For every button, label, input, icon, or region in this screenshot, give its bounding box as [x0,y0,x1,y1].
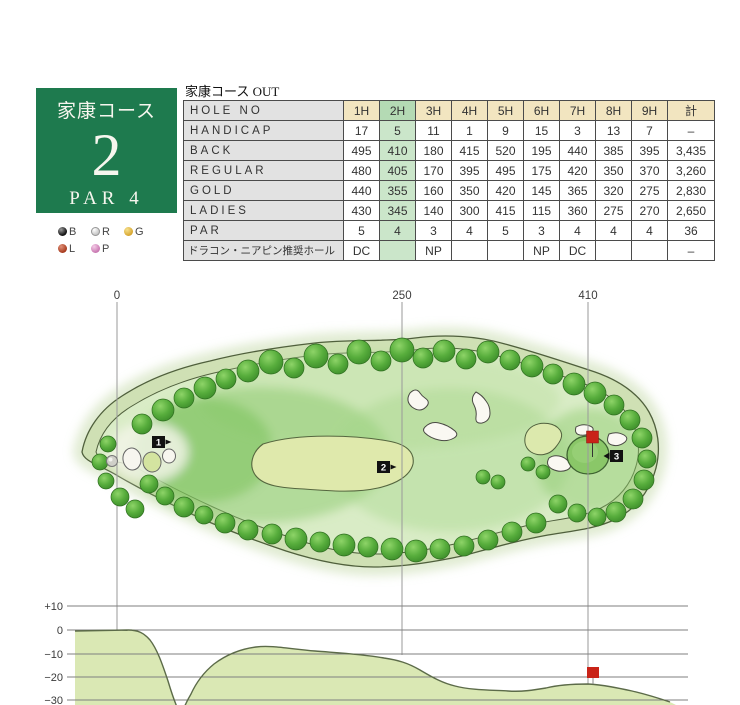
table-cell: 300 [452,201,488,221]
table-cell: 365 [560,181,596,201]
table-cell: 395 [452,161,488,181]
table-cell: – [668,121,715,141]
table-cell: 4 [560,221,596,241]
table-cell: 9 [488,121,524,141]
table-cell: 4H [452,101,488,121]
table-cell: 275 [632,181,668,201]
table-cell: 7H [560,101,596,121]
tee-legend-item: P [91,243,124,255]
terrain-fill-left [75,630,180,705]
table-row: HANDICAP 17 5 11 1 9 15 3 13 7 – [184,121,715,141]
table-row: REGULAR 480 405 170 395 495 175 420 350 … [184,161,715,181]
table-cell: 5 [488,221,524,241]
table-cell: 145 [524,181,560,201]
table-cell: 350 [452,181,488,201]
tee-legend-item: R [91,226,124,238]
table-cell: 3,260 [668,161,715,181]
table-row: LADIES 430 345 140 300 415 115 360 275 2… [184,201,715,221]
table-cell-highlighted: 410 [380,141,416,161]
table-cell: 440 [560,141,596,161]
table-cell: 11 [416,121,452,141]
table-cell: 3H [416,101,452,121]
table-cell: 270 [632,201,668,221]
tee-code: R [102,226,110,238]
tee-legend-row: B R G [58,223,188,240]
table-cell-highlighted [380,241,416,261]
table-cell: 計 [668,101,715,121]
tee-ball-red-icon [58,244,67,253]
table-cell [632,241,668,261]
table-cell: 430 [344,201,380,221]
putting-green-highlight [572,441,598,463]
row-label: PAR [184,221,344,241]
elevation-label-minus20: −20 [44,672,63,684]
table-cell: 1H [344,101,380,121]
row-label: HOLE NO [184,101,344,121]
elevation-chart: +10 0 −10 −20 −30 [44,601,688,705]
distance-label-410: 410 [578,290,597,302]
tee-code: L [69,243,75,255]
table-cell-highlighted: 5 [380,121,416,141]
table-cell: 4 [596,221,632,241]
course-guide-page: 家康コース 2 PAR 4 B R G L P 家康コース OUT HOLE [0,0,740,705]
table-cell: NP [524,241,560,261]
table-cell: 440 [344,181,380,201]
distance-label-250: 250 [392,290,411,302]
tee-marker-3-label: 3 [614,452,619,463]
table-cell: NP [416,241,452,261]
tee-code: P [102,243,109,255]
table-row: GOLD 440 355 160 350 420 145 365 320 275… [184,181,715,201]
course-name: 家康コース [36,96,177,123]
row-label: ドラコン・ニアピン推奨ホール [184,241,344,261]
table-cell: 395 [632,141,668,161]
hole-card: 家康コース 2 PAR 4 [36,88,177,213]
tee-legend-item: L [58,243,91,255]
tee-legend-row: L P [58,240,188,257]
table-cell: 420 [488,181,524,201]
table-cell: 6H [524,101,560,121]
table-cell: 370 [632,161,668,181]
table-row-header: HOLE NO 1H 2H 3H 4H 5H 6H 7H 8H 9H 計 [184,101,715,121]
table-cell: 415 [488,201,524,221]
table-cell-highlighted: 2H [380,101,416,121]
table-row: BACK 495 410 180 415 520 195 440 385 395… [184,141,715,161]
course-map-and-elevation: 0 250 410 [0,282,740,705]
table-cell-highlighted: 355 [380,181,416,201]
table-cell: 480 [344,161,380,181]
tee-marker-2-label: 2 [381,463,386,474]
tee-marker-1-label: 1 [156,438,162,449]
table-cell [596,241,632,261]
table-cell: 180 [416,141,452,161]
tee-legend-item: G [124,226,157,238]
distance-label-0: 0 [114,290,120,302]
table-row: ドラコン・ニアピン推奨ホール DC NP NP DC – [184,241,715,261]
tee-ball-pink-icon [91,244,100,253]
tee-legend-item: B [58,226,91,238]
table-cell: 495 [488,161,524,181]
table-row: PAR 5 4 3 4 5 3 4 4 4 36 [184,221,715,241]
scorecard-section: 家康コース OUT HOLE NO 1H 2H 3H 4H 5H 6H 7H 8… [183,81,715,261]
course-map: 1 2 3 [82,302,658,684]
table-cell: 175 [524,161,560,181]
table-cell-highlighted: 405 [380,161,416,181]
table-cell [488,241,524,261]
table-cell: 5H [488,101,524,121]
tee-box [107,456,118,467]
elevation-label-0: 0 [57,625,63,637]
table-cell: 385 [596,141,632,161]
tee-box-highlight [109,458,113,462]
scorecard-table: HOLE NO 1H 2H 3H 4H 5H 6H 7H 8H 9H 計 HAN… [183,100,715,261]
table-cell: 4 [452,221,488,241]
table-cell: 3 [560,121,596,141]
table-cell: 360 [560,201,596,221]
table-cell: 320 [596,181,632,201]
tee-code: G [135,226,144,238]
table-cell: 8H [596,101,632,121]
tee-code: B [69,226,76,238]
tee-ball-black-icon [58,227,67,236]
row-label: BACK [184,141,344,161]
elevation-flag-icon [587,667,599,684]
table-cell: 9H [632,101,668,121]
table-cell: 170 [416,161,452,181]
elevation-label-minus30: −30 [44,695,63,705]
par-label: PAR 4 [36,188,177,210]
hole-number: 2 [36,125,177,185]
table-cell: 5 [344,221,380,241]
table-cell: 17 [344,121,380,141]
elevation-label-minus10: −10 [44,649,63,661]
table-cell: 3,435 [668,141,715,161]
table-cell: DC [560,241,596,261]
scorecard-title: 家康コース OUT [185,81,715,96]
table-cell: 195 [524,141,560,161]
table-cell-highlighted: 4 [380,221,416,241]
tee-ball-gold-icon [124,227,133,236]
table-cell: 160 [416,181,452,201]
table-cell: 15 [524,121,560,141]
table-cell: 115 [524,201,560,221]
table-cell: DC [344,241,380,261]
table-cell: 1 [452,121,488,141]
row-label: HANDICAP [184,121,344,141]
table-cell-highlighted: 345 [380,201,416,221]
table-cell: 7 [632,121,668,141]
tee-ball-silver-icon [91,227,100,236]
tee-legend: B R G L P [58,223,188,257]
table-cell: 36 [668,221,715,241]
row-label: REGULAR [184,161,344,181]
table-cell [452,241,488,261]
table-cell: 13 [596,121,632,141]
tee-box [163,449,176,463]
table-cell: 3 [416,221,452,241]
table-cell: – [668,241,715,261]
table-cell: 275 [596,201,632,221]
row-label: GOLD [184,181,344,201]
table-cell: 350 [596,161,632,181]
table-cell: 415 [452,141,488,161]
row-label: LADIES [184,201,344,221]
table-cell: 4 [632,221,668,241]
elevation-label-plus10: +10 [44,601,63,613]
table-cell: 420 [560,161,596,181]
table-cell: 520 [488,141,524,161]
table-cell: 3 [524,221,560,241]
table-cell: 2,650 [668,201,715,221]
table-cell: 2,830 [668,181,715,201]
distance-labels: 0 250 410 [114,290,598,302]
elevation-axis-labels: +10 0 −10 −20 −30 [44,601,63,705]
table-cell: 140 [416,201,452,221]
table-cell: 495 [344,141,380,161]
